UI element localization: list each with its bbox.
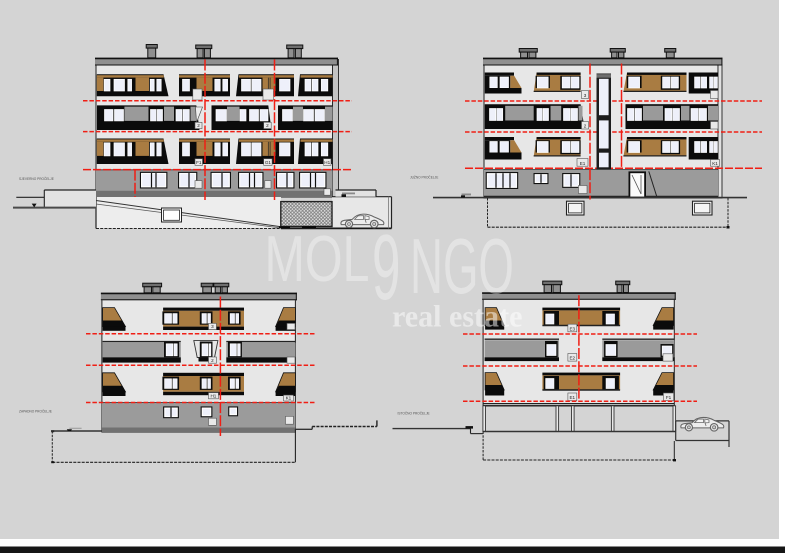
svg-text:G1: G1 <box>265 160 272 165</box>
svg-text:2: 2 <box>584 124 587 129</box>
svg-text:H1: H1 <box>324 160 330 165</box>
svg-text:K1: K1 <box>712 161 718 166</box>
svg-text:3: 3 <box>584 93 587 98</box>
svg-text:2: 2 <box>197 123 200 128</box>
svg-text:E3: E3 <box>569 326 575 331</box>
svg-text:SJEVERNO PROČELJE: SJEVERNO PROČELJE <box>19 176 54 181</box>
svg-text:H1: H1 <box>210 393 216 398</box>
svg-text:JUŽNO PROČELJE: JUŽNO PROČELJE <box>410 175 438 180</box>
svg-text:F1: F1 <box>666 395 672 400</box>
svg-text:MOL: MOL <box>265 223 370 296</box>
svg-text:E1: E1 <box>569 395 575 400</box>
svg-text:E1: E1 <box>580 161 586 166</box>
svg-text:real estate: real estate <box>392 299 522 334</box>
svg-text:3: 3 <box>211 324 214 329</box>
svg-text:ZAPADNO PROČELJE: ZAPADNO PROČELJE <box>19 409 52 414</box>
svg-text:F1: F1 <box>196 160 202 165</box>
svg-text:K1: K1 <box>286 396 292 401</box>
svg-text:2: 2 <box>266 123 269 128</box>
svg-text:ISTOČNO PROČELJE: ISTOČNO PROČELJE <box>398 411 430 416</box>
svg-text:NGO: NGO <box>410 222 514 310</box>
svg-text:2: 2 <box>211 358 214 363</box>
svg-text:E2: E2 <box>569 356 575 361</box>
